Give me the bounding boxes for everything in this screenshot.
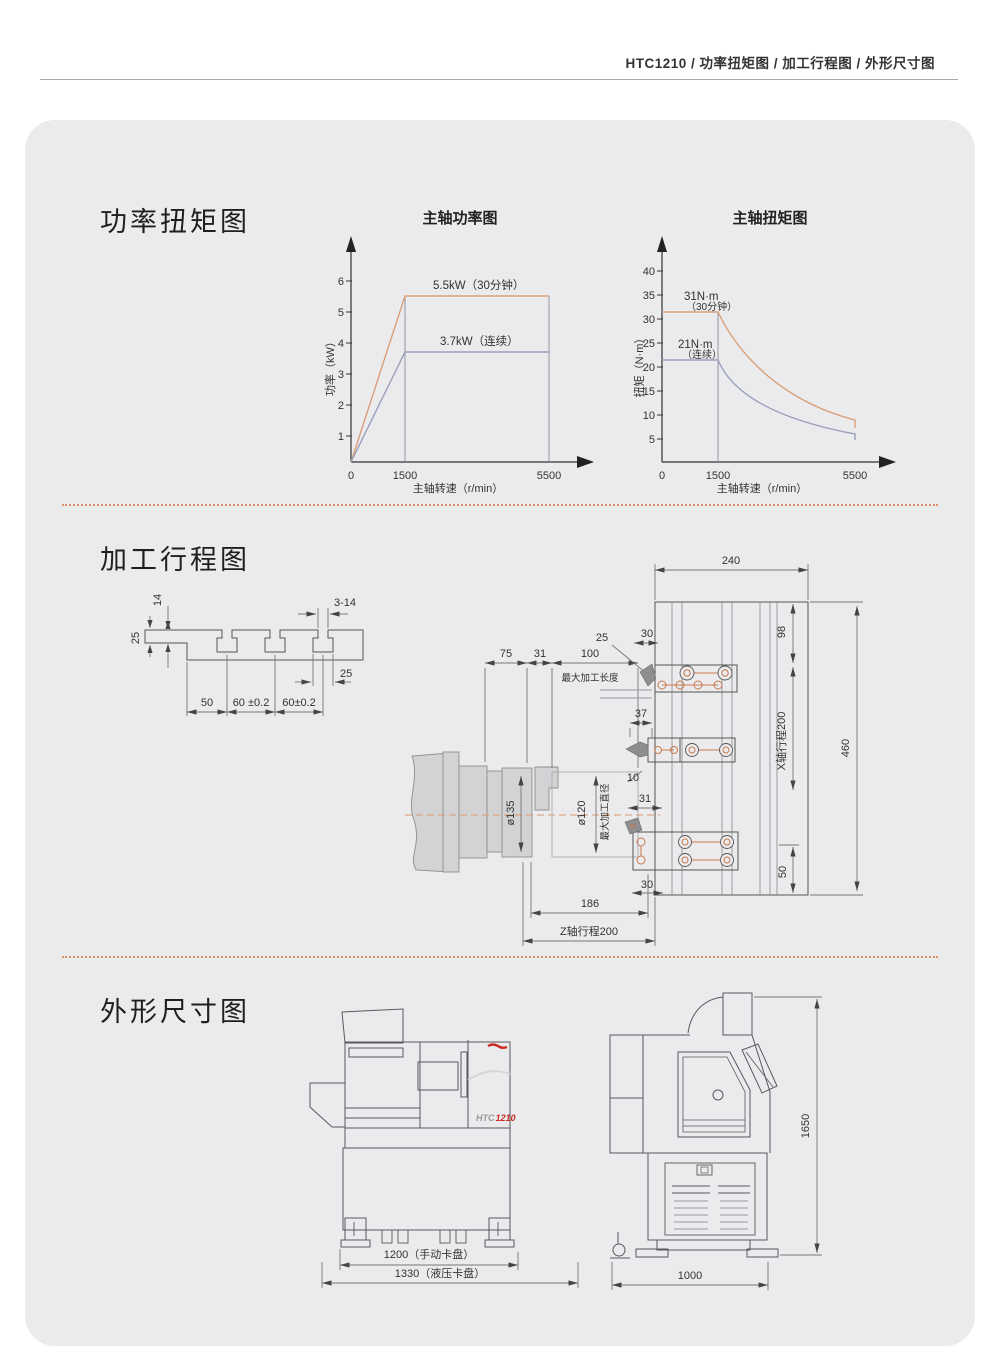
x-tick: 1500 bbox=[393, 470, 417, 482]
x-axis-label: 主轴转速（r/min） bbox=[717, 481, 807, 495]
dim-240: 240 bbox=[722, 555, 740, 567]
catalog-page: HTC1210 / 功率扭矩图 / 加工行程图 / 外形尺寸图 功率扭矩图 加工… bbox=[0, 0, 1000, 1358]
power-chart bbox=[346, 236, 594, 468]
dim-z-travel: Z轴行程200 bbox=[560, 924, 618, 938]
series-label-cont: 3.7kW（连续） bbox=[440, 334, 519, 348]
dim-dia-120: ø120 bbox=[576, 800, 588, 825]
front-view-drawing: HTC1210 1200（手动卡盘） 1330（液压卡盘） bbox=[310, 1009, 578, 1288]
dim-31: 31 bbox=[534, 648, 546, 660]
dim-1000-depth: 1000 bbox=[678, 1270, 702, 1282]
dim-31-mid: 31 bbox=[639, 793, 651, 805]
drawings-layer: 6 5 4 3 2 1 0 1500 5500 5.5kW（30分钟） 3.7k… bbox=[0, 0, 1000, 1358]
dim-30-top: 30 bbox=[641, 628, 653, 640]
dim-1330-hydraulic-chuck: 1330（液压卡盘） bbox=[395, 1266, 485, 1280]
y-axis-arrow bbox=[346, 236, 356, 252]
torque-chart-text: 40 35 30 25 20 15 10 5 0 1500 5500 31N·m… bbox=[632, 266, 867, 495]
y-tick: 1 bbox=[338, 431, 344, 443]
tslot-dims: 14 25 3-14 25 50 60 ±0.2 60±0.2 bbox=[130, 594, 356, 709]
spindle-drawing: 75 31 100 最大加工长度 25 ø135 ø120 最大加工直径 186… bbox=[405, 632, 660, 946]
label-max-diameter: 最大加工直径 bbox=[599, 783, 611, 841]
dim-25-left: 25 bbox=[130, 632, 142, 644]
y-axis-label: 功率（kW） bbox=[323, 336, 337, 396]
y-tick: 5 bbox=[338, 307, 344, 319]
dim-50: 50 bbox=[777, 866, 789, 878]
dim-60b: 60±0.2 bbox=[282, 697, 316, 709]
dim-37: 37 bbox=[635, 708, 647, 720]
torque-series-cont bbox=[662, 360, 855, 440]
x-tick: 0 bbox=[348, 470, 354, 482]
y-tick: 6 bbox=[338, 276, 344, 288]
dim-98: 98 bbox=[776, 626, 788, 638]
series-label-30min: 5.5kW（30分钟） bbox=[433, 278, 524, 292]
x-tick: 5500 bbox=[537, 470, 561, 482]
work-envelope bbox=[552, 772, 638, 857]
y-tick: 10 bbox=[643, 410, 655, 422]
dim-460: 460 bbox=[840, 739, 852, 757]
series-sublabel-cont: （连续） bbox=[682, 348, 722, 361]
dim-25-right: 25 bbox=[340, 668, 352, 680]
dim-dia-135: ø135 bbox=[505, 800, 517, 825]
side-view-drawing: 1650 1000 bbox=[610, 993, 822, 1290]
x-tick: 5500 bbox=[843, 470, 867, 482]
dim-60a: 60 ±0.2 bbox=[233, 697, 270, 709]
tool-bit-top bbox=[640, 664, 656, 686]
dim-1650-height: 1650 bbox=[800, 1114, 812, 1138]
model-number: 1210 bbox=[496, 1113, 516, 1123]
y-tick: 3 bbox=[338, 369, 344, 381]
dim-75: 75 bbox=[500, 648, 512, 660]
dim-186: 186 bbox=[581, 898, 599, 910]
torque-series-30min bbox=[662, 312, 855, 428]
model-prefix: HTC bbox=[476, 1113, 495, 1123]
dim-1200-manual-chuck: 1200（手动卡盘） bbox=[384, 1247, 474, 1261]
model-label: HTC1210 bbox=[476, 1113, 516, 1123]
dim-10: 10 bbox=[627, 772, 639, 784]
y-tick: 30 bbox=[643, 314, 655, 326]
dim-x-travel: X轴行程200 bbox=[774, 712, 788, 771]
y-tick: 2 bbox=[338, 400, 344, 412]
x-tick: 1500 bbox=[706, 470, 730, 482]
y-tick: 40 bbox=[643, 266, 655, 278]
dim-3-14: 3-14 bbox=[334, 597, 356, 609]
x-axis-label: 主轴转速（r/min） bbox=[413, 481, 503, 495]
dim-25-gap: 25 bbox=[596, 632, 608, 644]
y-axis-arrow bbox=[657, 236, 667, 252]
power-series-30min bbox=[351, 296, 549, 462]
series-sublabel-30min: （30分钟） bbox=[686, 300, 737, 313]
dim-30-bottom: 30 bbox=[641, 879, 653, 891]
x-tick: 0 bbox=[659, 470, 665, 482]
dim-100: 100 bbox=[581, 648, 599, 660]
y-tick: 5 bbox=[649, 434, 655, 446]
dim-14: 14 bbox=[152, 594, 164, 606]
x-axis-arrow bbox=[577, 456, 594, 468]
label-max-length: 最大加工长度 bbox=[561, 672, 619, 684]
x-axis-arrow bbox=[879, 456, 896, 468]
brand-logo-icon bbox=[488, 1045, 507, 1048]
tool-bit-middle bbox=[626, 742, 648, 757]
y-tick: 4 bbox=[338, 338, 344, 350]
y-tick: 35 bbox=[643, 290, 655, 302]
dim-50: 50 bbox=[201, 697, 213, 709]
y-axis-label: 扭矩（N·m） bbox=[632, 333, 646, 398]
turret-drawing: 240 98 X轴行程200 460 50 30 37 10 31 30 bbox=[625, 555, 863, 895]
